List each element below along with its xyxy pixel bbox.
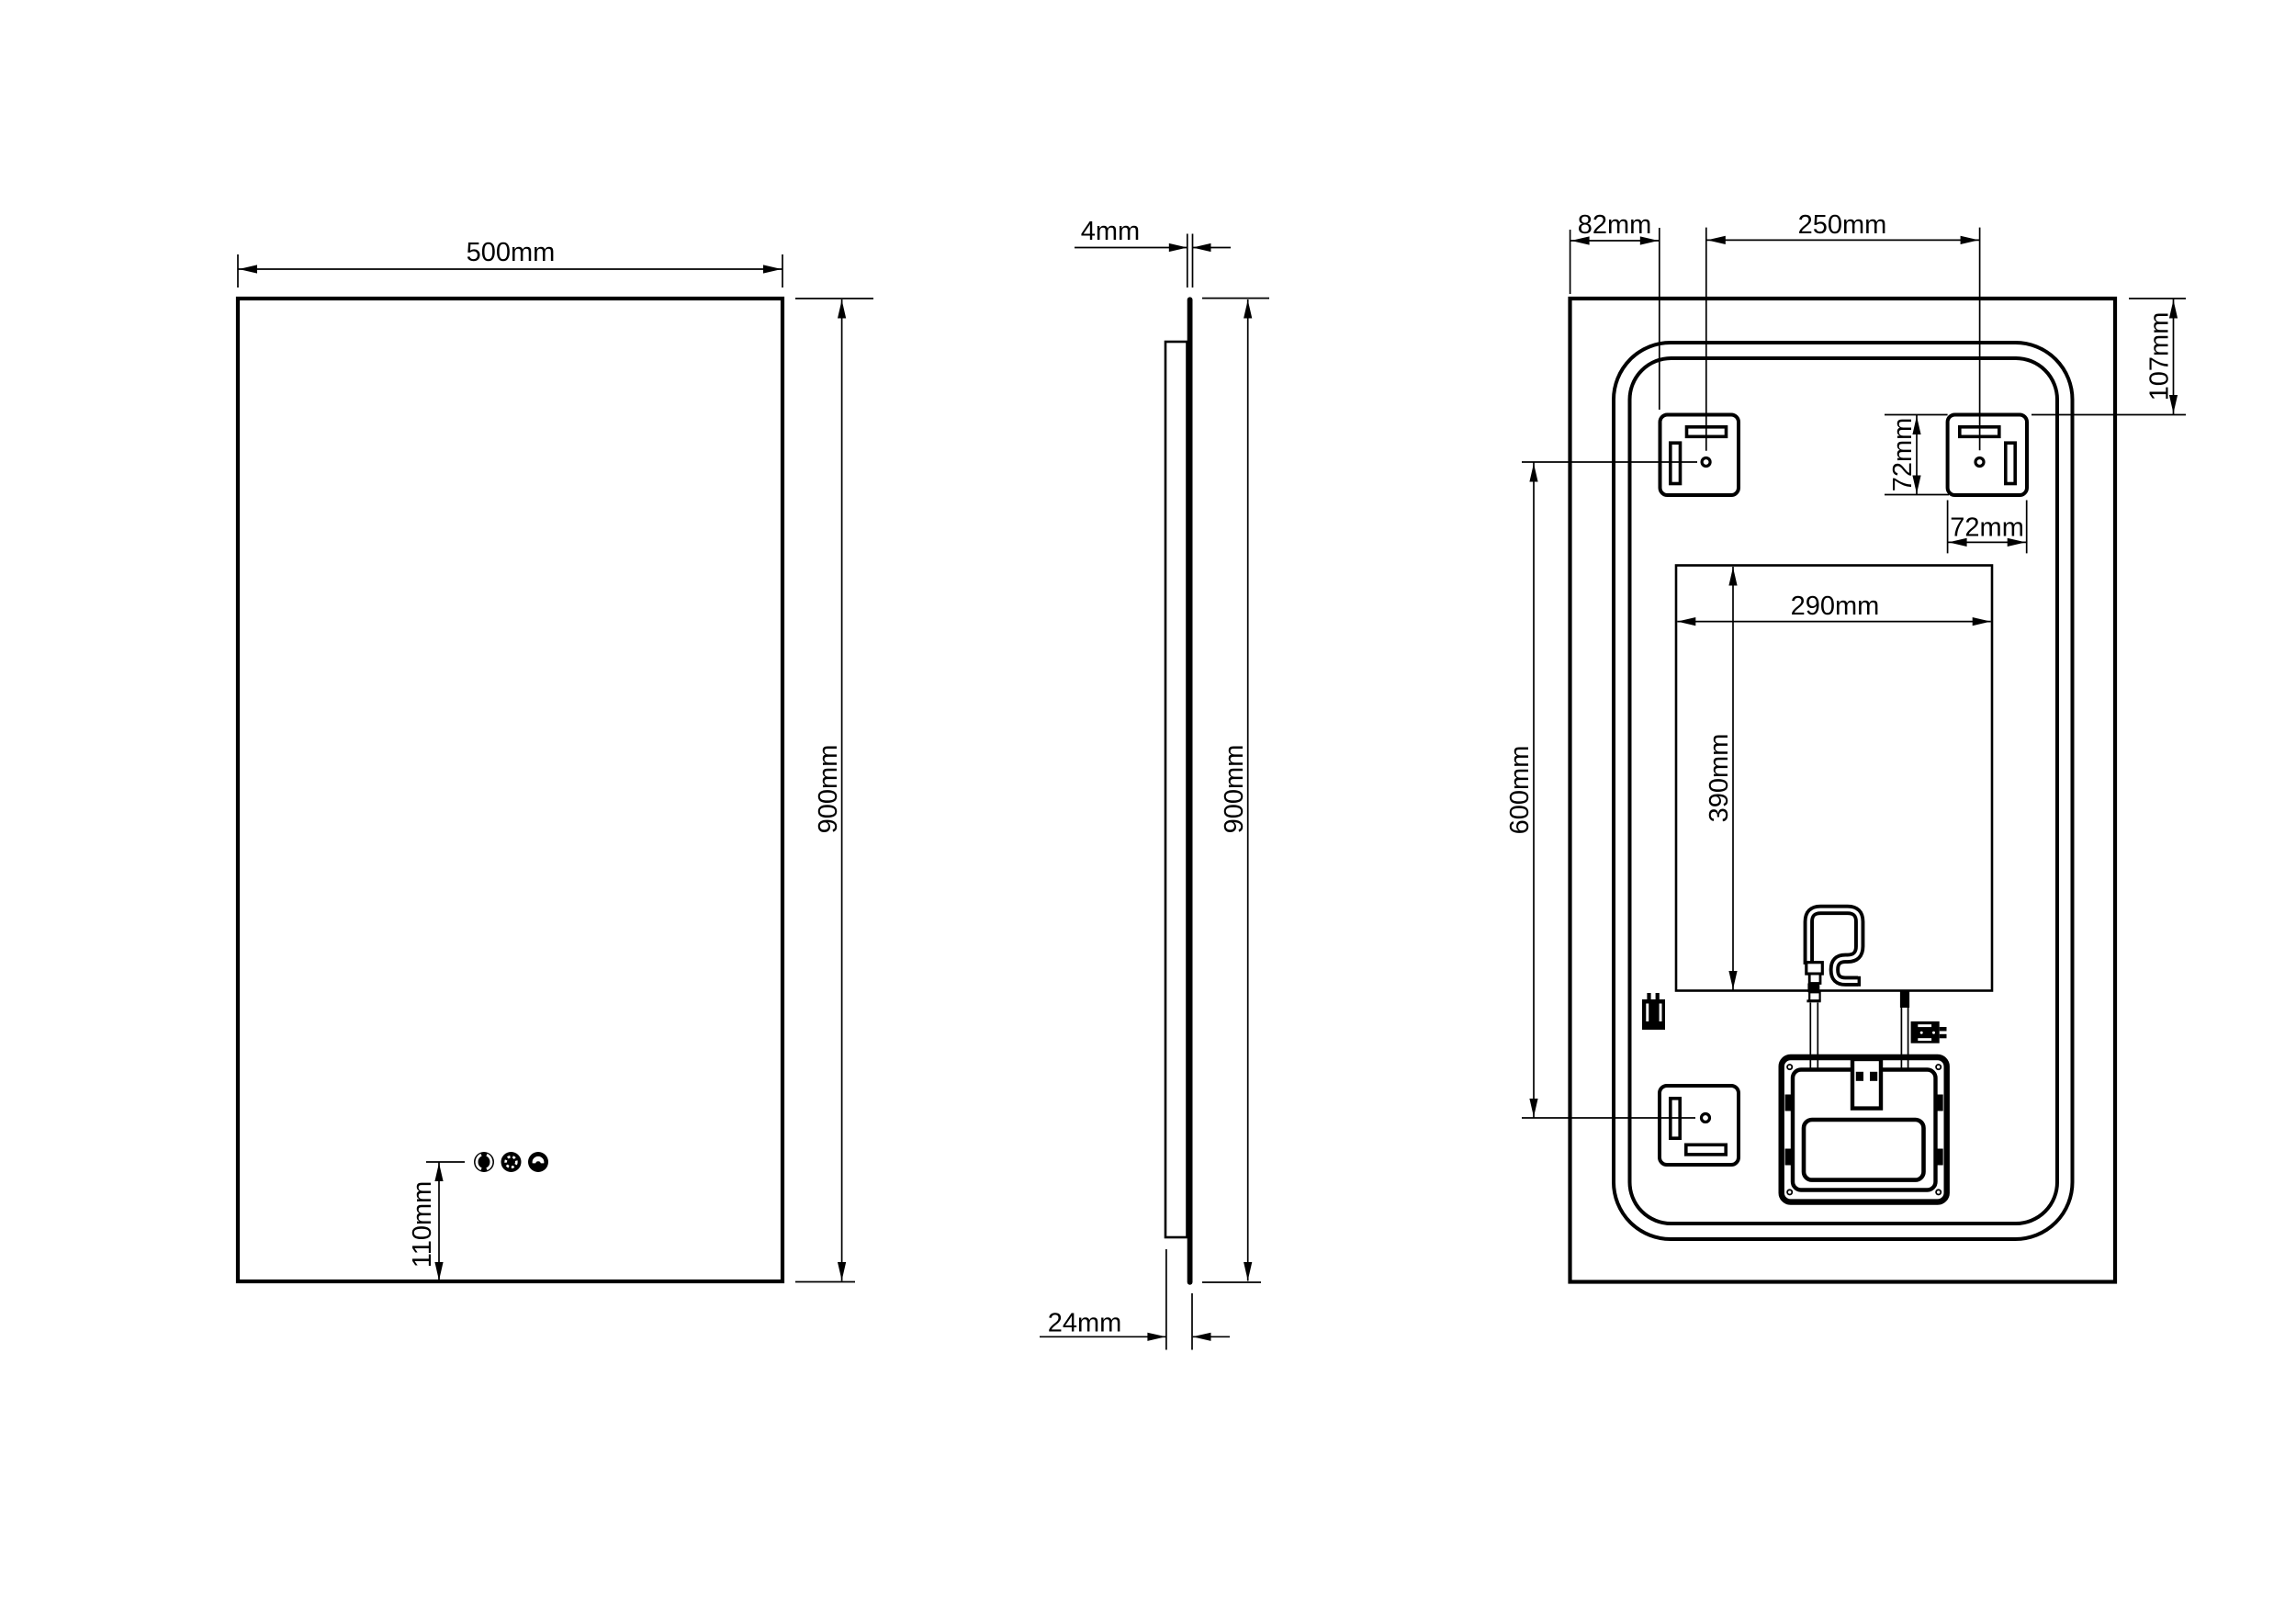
- svg-text:900mm: 900mm: [814, 745, 843, 834]
- svg-text:72mm: 72mm: [1888, 418, 1918, 492]
- svg-text:107mm: 107mm: [2145, 312, 2175, 401]
- svg-text:290mm: 290mm: [1791, 592, 1880, 621]
- svg-text:390mm: 390mm: [1705, 734, 1734, 823]
- svg-text:72mm: 72mm: [1950, 513, 2024, 542]
- svg-text:250mm: 250mm: [1798, 210, 1887, 240]
- svg-text:4mm: 4mm: [1081, 217, 1140, 246]
- svg-text:24mm: 24mm: [1048, 1308, 1122, 1337]
- svg-text:900mm: 900mm: [1220, 745, 1249, 834]
- svg-text:500mm: 500mm: [467, 238, 556, 267]
- svg-text:110mm: 110mm: [408, 1181, 437, 1269]
- svg-text:82mm: 82mm: [1578, 210, 1652, 240]
- svg-text:600mm: 600mm: [1505, 746, 1535, 835]
